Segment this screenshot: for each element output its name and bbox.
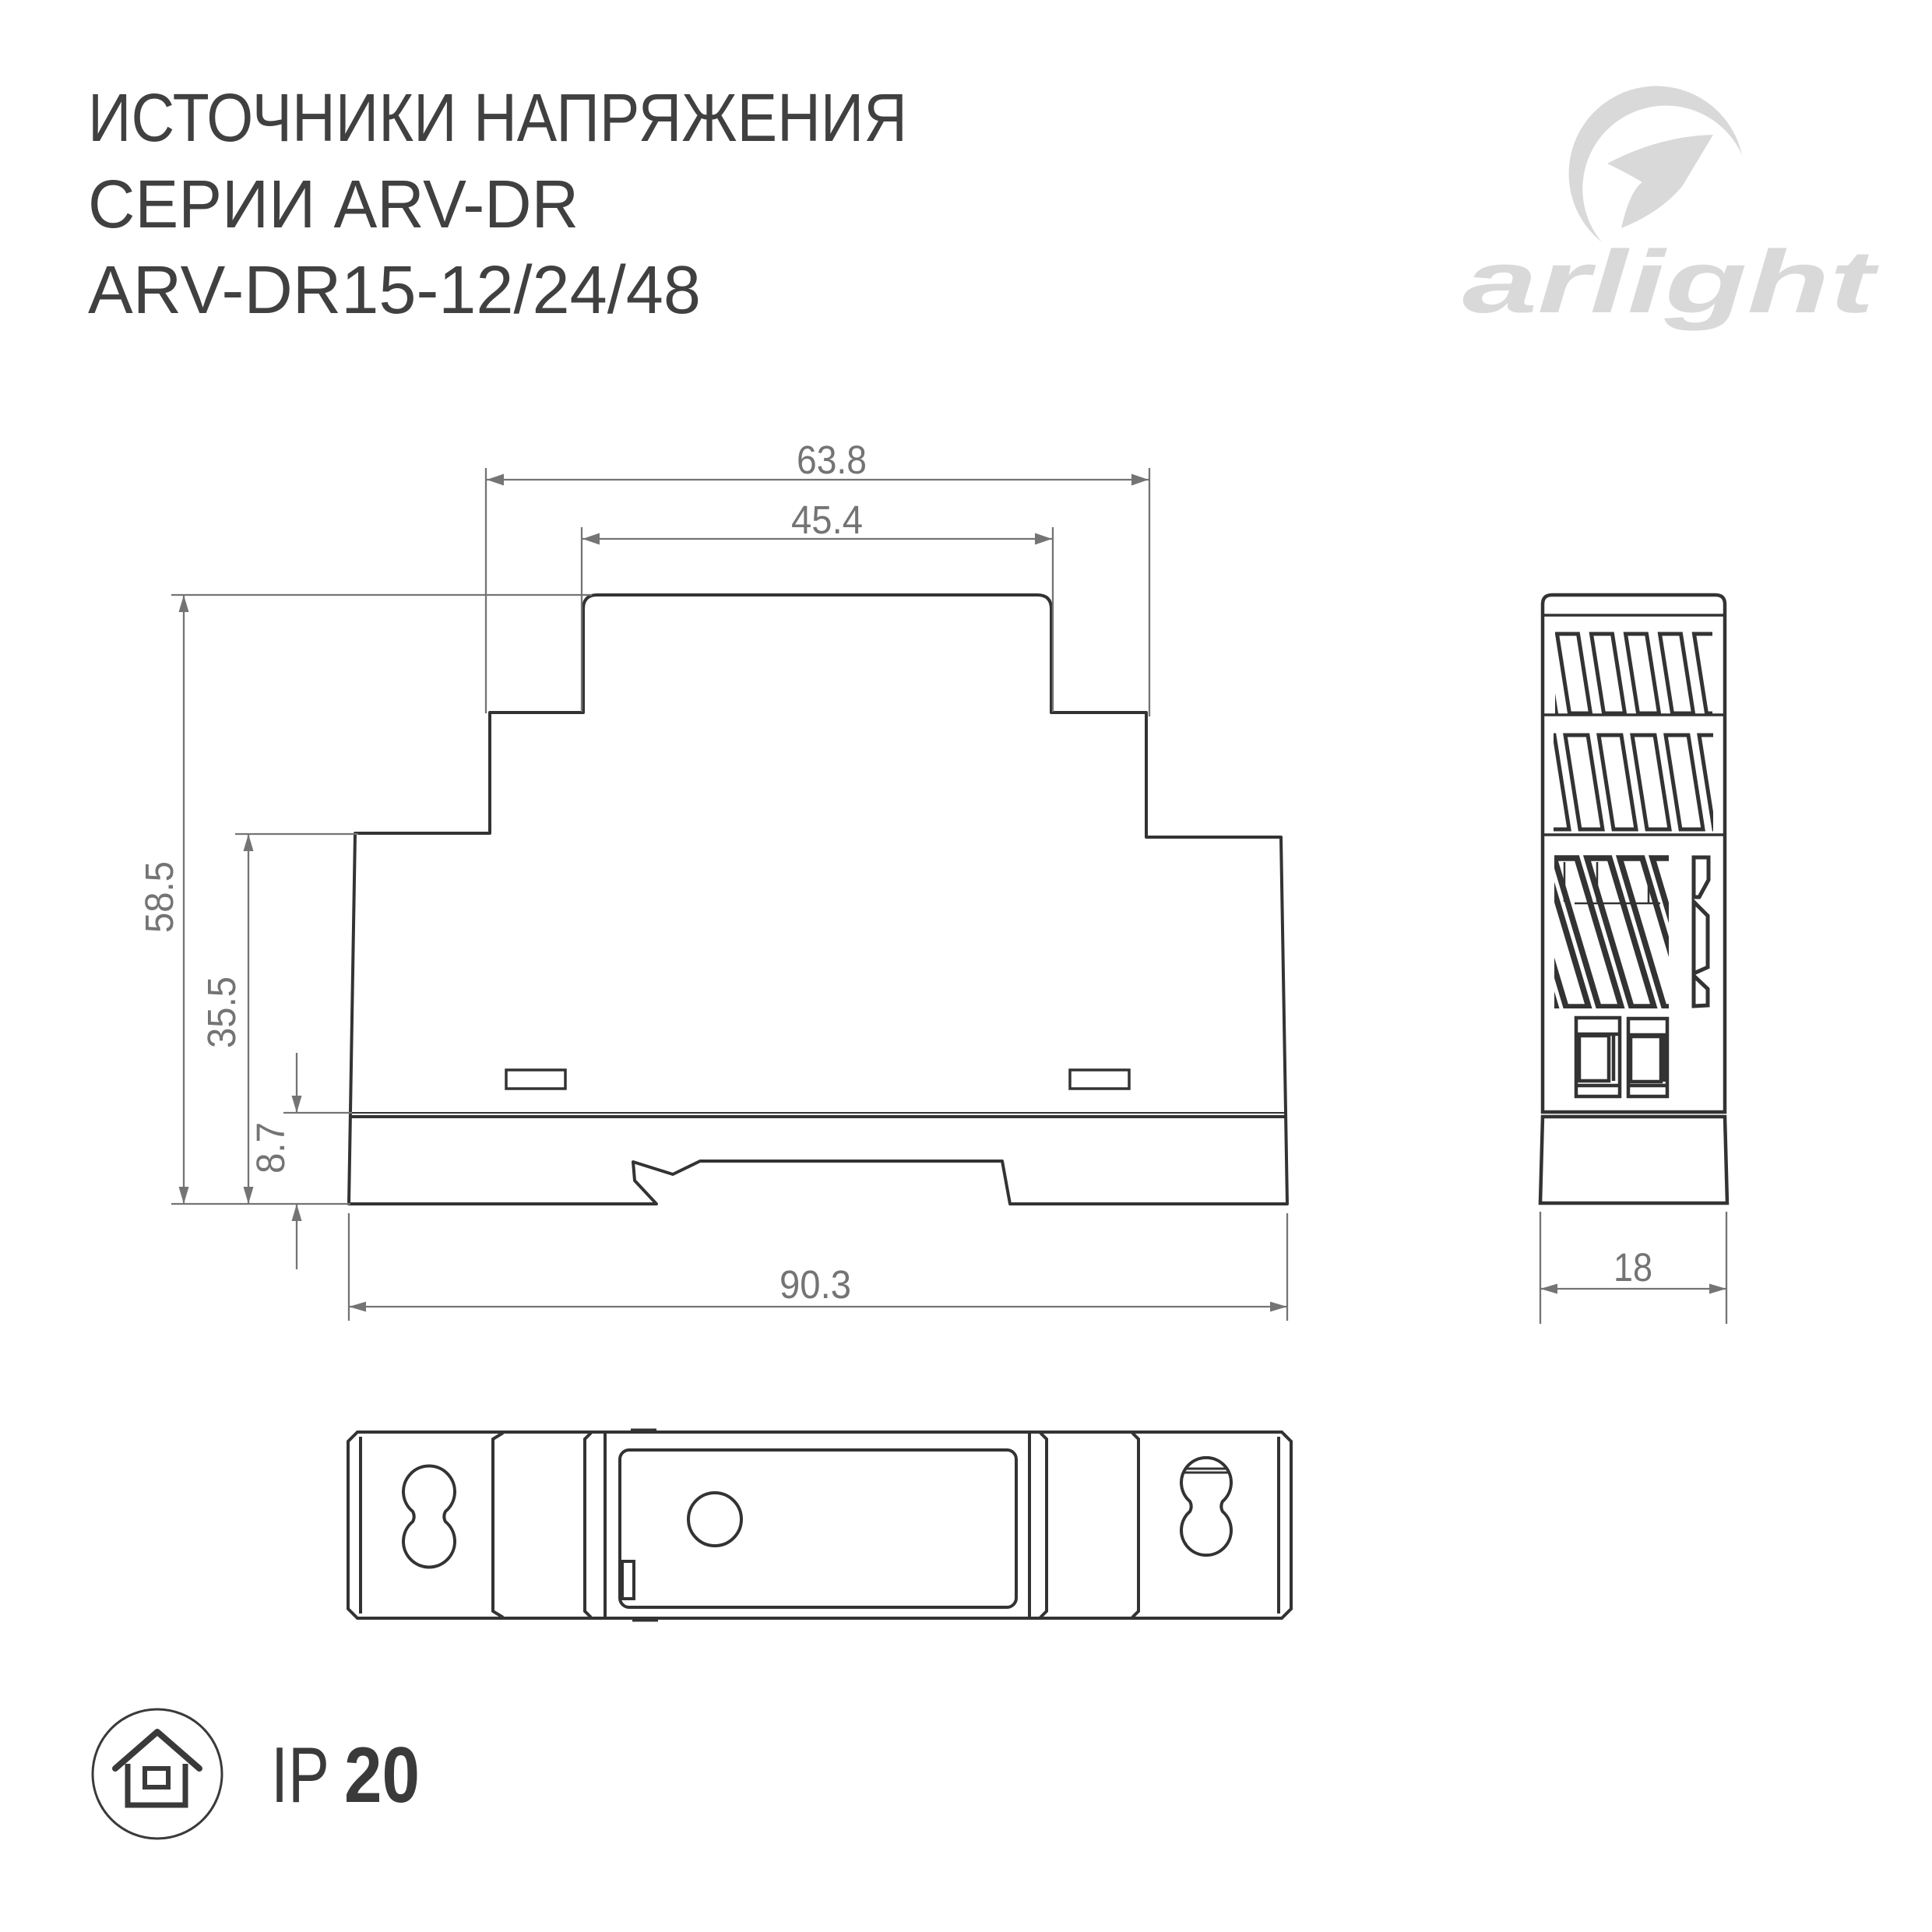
svg-text:20: 20	[344, 1732, 420, 1819]
svg-text:ARV-DR15-12/24/48: ARV-DR15-12/24/48	[88, 252, 701, 328]
svg-text:8.7: 8.7	[248, 1122, 293, 1174]
svg-text:arlight: arlight	[1462, 233, 1879, 332]
svg-text:ИСТОЧНИКИ НАПРЯЖЕНИЯ: ИСТОЧНИКИ НАПРЯЖЕНИЯ	[88, 80, 907, 156]
svg-text:35.5: 35.5	[199, 977, 244, 1048]
svg-text:IP: IP	[271, 1732, 329, 1819]
svg-text:СЕРИИ ARV-DR: СЕРИИ ARV-DR	[88, 167, 579, 242]
svg-text:45.4: 45.4	[791, 498, 863, 542]
svg-text:63.8: 63.8	[797, 438, 867, 482]
svg-text:58.5: 58.5	[137, 861, 181, 933]
svg-text:90.3: 90.3	[779, 1262, 851, 1307]
svg-text:18: 18	[1614, 1245, 1652, 1290]
